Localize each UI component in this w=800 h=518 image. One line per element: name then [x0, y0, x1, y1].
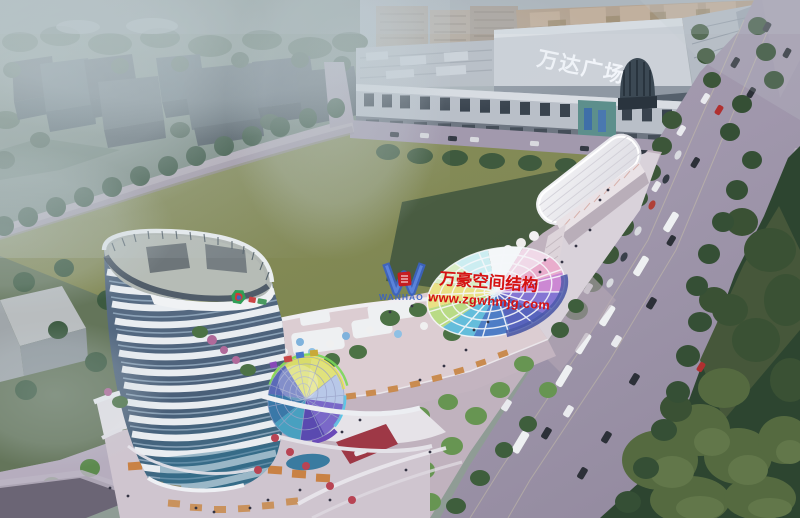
svg-text:WANHAO: WANHAO: [379, 292, 424, 302]
